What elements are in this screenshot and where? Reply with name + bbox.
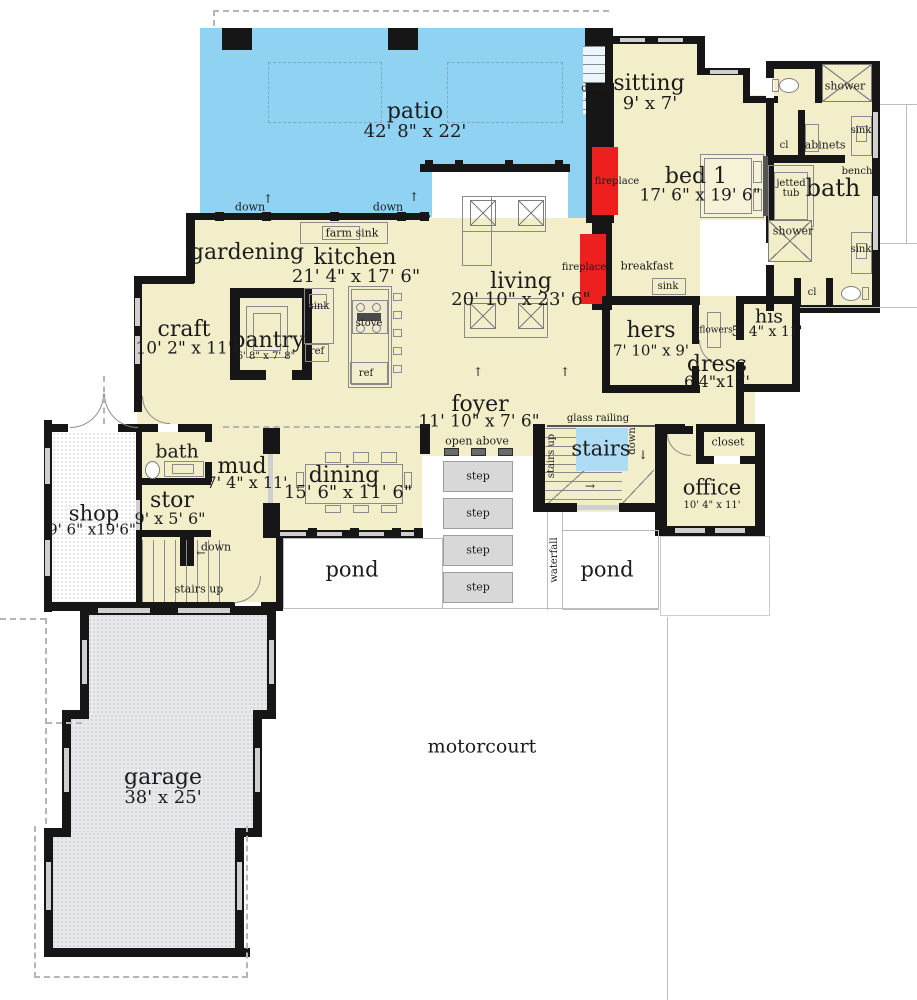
room-dims-shop: 9' 6" x19'6" <box>48 522 136 537</box>
burner <box>356 303 365 312</box>
sink-label: sink <box>851 245 872 255</box>
room-label-bath-main: bath <box>806 176 861 200</box>
bath2-mud-wall <box>205 424 212 442</box>
step-label: step <box>466 507 490 518</box>
room-dims-mud: 7' 4" x 11' <box>206 475 287 491</box>
wall-post <box>268 528 277 537</box>
open-above-label: open above <box>445 435 509 446</box>
pantry-top-wall <box>230 288 312 298</box>
open-above-post <box>444 448 459 456</box>
room-dims-pantry: 6' 8" x 7' 8" <box>237 352 296 362</box>
bath2-stor-divider <box>137 478 211 485</box>
glass-railing-label: glass railing <box>567 414 629 424</box>
waterfall-line <box>562 512 563 610</box>
stove-label: stove <box>356 319 383 329</box>
breakfast-label: breakfast <box>621 260 674 271</box>
patio-roof-panel <box>447 62 563 123</box>
garage-top-window <box>178 608 230 613</box>
bath-window <box>873 196 878 250</box>
patio-column <box>388 28 418 50</box>
pond-label-left: pond <box>325 559 378 580</box>
down-label: down <box>235 201 265 212</box>
room-label-gardening: gardening <box>190 242 304 264</box>
shop-window <box>45 448 50 484</box>
room-dims-craft: 10' 2" x 11' <box>135 340 232 357</box>
patio-roof-panel <box>268 62 382 123</box>
garage-floor <box>88 614 272 714</box>
his-top-wall <box>736 296 800 304</box>
cabinets-label: cabinets <box>799 139 846 150</box>
chair <box>325 452 341 463</box>
fireplace-label: fireplace <box>595 177 639 187</box>
down-arrow-icon: ↓ <box>638 449 648 461</box>
chair <box>381 505 397 513</box>
sofa-cushion <box>470 200 496 226</box>
room-dims-stor: 9' x 5' 6" <box>135 511 206 527</box>
ref-label: ref <box>359 369 373 379</box>
wall-post <box>455 160 463 168</box>
roof-line <box>880 104 917 105</box>
ref-label: ref <box>310 347 324 357</box>
room-dims-hers: 7' 10" x 9' <box>613 343 689 358</box>
room-dims-dining: 15' 6" x 11' 6" <box>284 484 412 502</box>
motorcourt-line <box>667 617 668 1000</box>
stool <box>393 365 402 373</box>
chair <box>381 452 397 463</box>
bed1-north-window <box>710 70 738 74</box>
stool <box>393 311 402 319</box>
sitting-window <box>620 38 645 42</box>
stool <box>393 293 402 301</box>
wall-post <box>350 528 359 537</box>
toilet-icon <box>145 461 160 479</box>
left-arrow-icon: ← <box>196 547 205 558</box>
garage-dashed-line <box>46 722 82 724</box>
craft-step-wall <box>134 276 194 284</box>
garage-window <box>82 640 87 684</box>
garage-window <box>255 748 260 792</box>
office-door-header <box>665 426 693 434</box>
room-label-pantry: pantry <box>231 330 304 352</box>
stor-stairwell-divider <box>137 530 211 537</box>
chair <box>353 452 369 463</box>
room-label-bath2: bath <box>155 442 198 461</box>
living-top-wall <box>420 164 570 172</box>
gardening-top-wall <box>190 213 428 220</box>
office-right-wall <box>755 424 765 536</box>
garage-window <box>269 640 274 684</box>
up-arrow-icon: ↑ <box>263 193 273 205</box>
room-label-hers: hers <box>627 320 676 342</box>
stool <box>393 329 402 337</box>
roof-line <box>906 104 907 244</box>
roof-line <box>800 307 917 308</box>
farm-sink-label: farm sink <box>326 227 379 238</box>
stairs-up-label: stairs up <box>175 583 224 594</box>
pond-label-right: pond <box>580 559 633 580</box>
open-above-post <box>498 448 513 456</box>
wall-post <box>392 528 401 537</box>
jetted-tub-label: jetted tub <box>770 179 812 199</box>
room-dims-his: 5' 4" x 11' <box>731 325 802 339</box>
shower-label: shower <box>825 80 866 91</box>
his-right-wall <box>792 296 800 392</box>
terrace-outline <box>660 536 770 616</box>
toilet-icon <box>779 78 799 93</box>
shower-divider-wall <box>815 61 822 103</box>
stairs-left-wall <box>533 424 545 512</box>
shower-label: shower <box>773 225 814 236</box>
room-dims-living: 20' 10" x 23' 6" <box>451 291 591 309</box>
dining-west-wall <box>263 428 280 454</box>
flowers-label: flowers <box>699 326 732 335</box>
step-label: step <box>466 581 490 592</box>
toilet-tank <box>772 79 779 92</box>
stool <box>393 347 402 355</box>
door-gap <box>714 456 740 464</box>
down-label: down <box>373 201 403 212</box>
shop-window <box>45 540 50 576</box>
bath-cl2-wall <box>826 278 833 308</box>
fireplace-label: fireplace <box>562 263 606 273</box>
stairs-bottom-window <box>577 505 619 510</box>
foyer-dining-dashed-line <box>223 426 421 428</box>
up-arrow-icon: ↑ <box>409 191 419 203</box>
sitting-left-wall <box>605 28 613 85</box>
french-door-arc <box>104 394 138 428</box>
office-left-wall <box>655 424 667 536</box>
bath-right-wall <box>872 61 880 313</box>
room-dims-garage: 38' x 25' <box>124 789 201 807</box>
room-dims-dress: 6'4"x17' <box>684 374 750 390</box>
step-label: step <box>466 470 490 481</box>
hers-right-wall <box>692 302 699 344</box>
garage-dashed-line <box>45 618 47 824</box>
dining-window <box>358 532 384 536</box>
dining-window <box>280 532 306 536</box>
closet-top-wall <box>696 424 758 432</box>
corridor-right-wall <box>276 533 283 611</box>
right-arrow-icon: → <box>585 480 595 492</box>
garage-window <box>64 748 69 792</box>
pillow <box>753 161 762 183</box>
bath-window <box>873 112 878 158</box>
office-bottom-wall <box>655 526 765 536</box>
room-label-stairs: stairs <box>571 438 630 459</box>
hers-left-wall <box>602 305 610 393</box>
craft-window <box>135 298 140 326</box>
garage-dashed-line <box>0 618 46 620</box>
waterfall-line <box>547 512 548 610</box>
french-door-arc <box>70 394 104 428</box>
wall-post <box>555 160 563 168</box>
room-dims-patio: 42' 8" x 22' <box>364 123 467 141</box>
pantry-bottom-wall <box>230 370 266 380</box>
door-gap <box>158 424 178 432</box>
sink-label: sink <box>309 302 330 312</box>
office-window <box>715 528 745 533</box>
sink-basin <box>172 464 194 474</box>
wall-post <box>414 528 423 537</box>
wall-post <box>308 528 317 537</box>
step-label: step <box>466 544 490 555</box>
pantry-bottom-wall <box>292 370 312 380</box>
roof-line <box>880 243 917 244</box>
hers-top-wall <box>602 296 700 305</box>
stairs-up-label: stairs up <box>547 434 557 478</box>
door-dashed-line <box>103 376 105 424</box>
wall-post <box>505 160 513 168</box>
toilet-icon <box>841 286 861 301</box>
room-dims-office: 10' 4" x 11' <box>683 501 740 511</box>
pond-bottom-line <box>283 608 659 609</box>
toilet-tank <box>862 287 869 300</box>
left-arrow-icon: ← <box>585 95 593 105</box>
stairs-bottom-wall <box>533 503 577 512</box>
chair <box>325 505 341 513</box>
up-arrow-icon: ↑ <box>473 366 483 378</box>
chair <box>353 505 369 513</box>
sitting-window <box>658 38 683 42</box>
room-dims-sitting: 9' x 7' <box>623 95 677 113</box>
bath-mid-wall <box>770 155 845 163</box>
sink-label: sink <box>658 282 679 292</box>
cl-label: cl <box>780 141 789 151</box>
bench-label: bench <box>842 167 873 177</box>
wall-post <box>425 160 433 168</box>
garage-apron-dashed <box>34 826 248 978</box>
room-dims-bed1: 17' 6" x 19' 6" <box>639 187 760 204</box>
floor-plan-canvas: patio 42' 8" x 22' down down ↑ ↑ down ← … <box>0 0 917 1000</box>
craft-left-wall <box>134 276 142 392</box>
sofa-cushion <box>518 200 544 226</box>
office-window <box>675 528 705 533</box>
stairs-bottom-wall <box>619 503 655 512</box>
patio-column <box>222 28 252 50</box>
glass-railing-line <box>547 425 655 427</box>
stair-landing-diagonal <box>620 470 654 506</box>
waterfall-label: waterfall <box>550 537 560 582</box>
down-label: down <box>628 427 638 454</box>
room-dims-foyer: 11' 10" x 7' 6" <box>418 413 539 430</box>
dining-window <box>316 532 342 536</box>
room-dims-kitchen: 21' 4" x 17' 6" <box>292 268 420 286</box>
closet-label: closet <box>712 436 745 447</box>
sink-label: sink <box>851 126 872 136</box>
garage-top-window <box>98 608 150 613</box>
down-label: down <box>581 84 608 94</box>
room-label-office: office <box>683 477 741 498</box>
patio-surface-strip <box>568 170 588 220</box>
up-arrow-icon: ↑ <box>560 366 570 378</box>
motorcourt-label: motorcourt <box>428 737 537 756</box>
cl-label: cl <box>808 288 817 298</box>
burner <box>372 303 381 312</box>
open-above-post <box>471 448 486 456</box>
headboard <box>763 156 768 216</box>
